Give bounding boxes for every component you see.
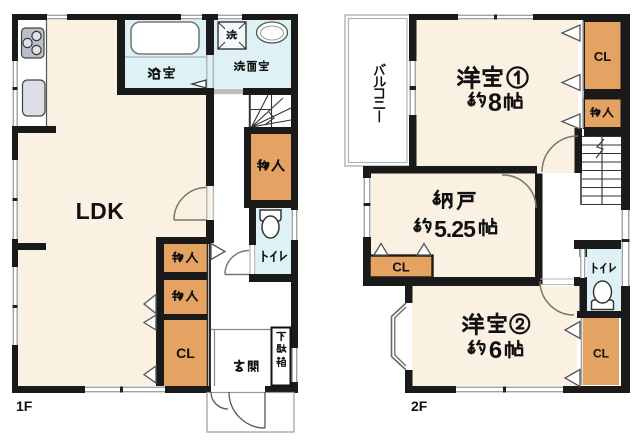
svg-text:LDK: LDK — [76, 198, 125, 224]
svg-text:6: 6 — [489, 337, 502, 364]
svg-text:2F: 2F — [411, 398, 428, 414]
svg-text:CL: CL — [594, 49, 611, 64]
svg-text:CL: CL — [176, 345, 195, 361]
svg-text:CL: CL — [593, 347, 609, 361]
svg-text:5.25: 5.25 — [434, 216, 476, 242]
svg-text:CL: CL — [392, 260, 409, 275]
svg-text:1F: 1F — [16, 398, 33, 414]
svg-text:8: 8 — [488, 89, 502, 117]
